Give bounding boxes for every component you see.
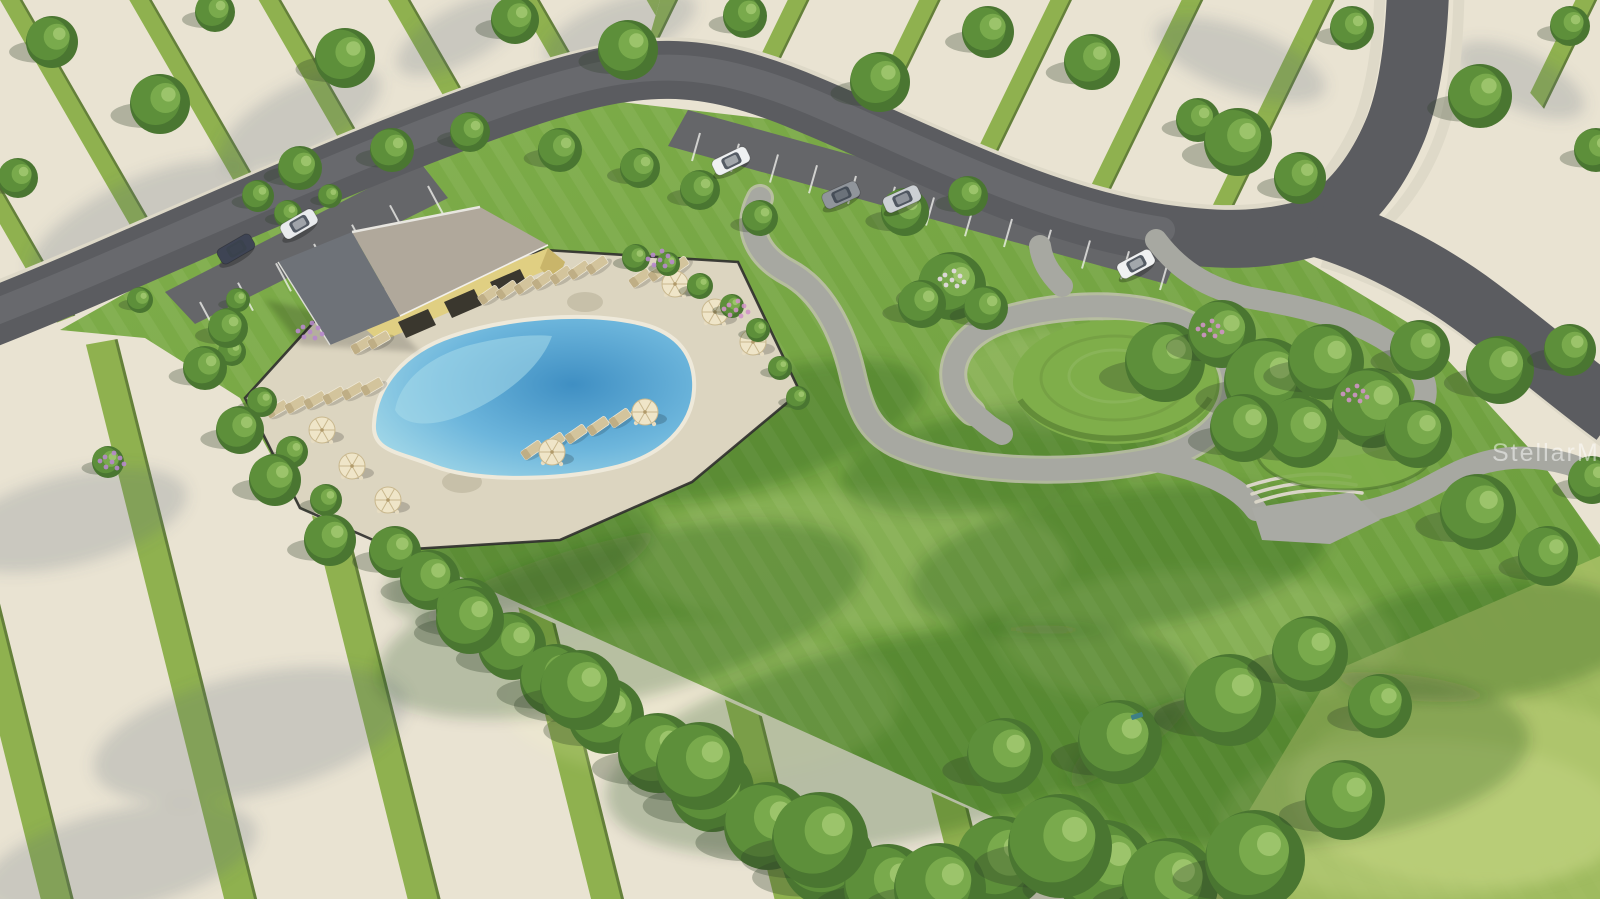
bloom (943, 273, 948, 278)
bloom (1347, 398, 1352, 403)
canopy-highlight (1421, 333, 1435, 347)
umbrella-finial (550, 450, 554, 454)
bloom (727, 303, 732, 308)
bloom (1196, 327, 1201, 332)
bloom (670, 260, 675, 265)
canopy-highlight (987, 296, 998, 307)
canopy-highlight (881, 65, 895, 79)
canopy-highlight (942, 863, 964, 885)
canopy-highlight (1245, 409, 1261, 425)
canopy-highlight (393, 138, 404, 149)
canopy-highlight (238, 293, 244, 299)
canopy-highlight (331, 525, 343, 537)
bloom (301, 325, 306, 330)
canopy-highlight (1328, 341, 1346, 359)
bloom (1210, 319, 1215, 324)
canopy-highlight (1232, 674, 1254, 696)
bloom (115, 466, 120, 471)
bloom (728, 313, 733, 318)
canopy-highlight (1257, 832, 1281, 856)
canopy-highlight (1122, 718, 1142, 738)
bloom (310, 321, 315, 326)
canopy-highlight (1199, 108, 1210, 119)
canopy-highlight (1419, 415, 1435, 431)
canopy-highlight (702, 741, 723, 762)
canopy-highlight (1312, 633, 1330, 651)
deck-medallion (567, 292, 603, 312)
bloom (666, 254, 671, 259)
canopy-highlight (516, 7, 528, 19)
bloom (308, 330, 313, 335)
canopy-highlight (1571, 335, 1583, 347)
bloom (1341, 392, 1346, 397)
bloom (1358, 399, 1363, 404)
canopy-highlight (229, 317, 239, 327)
bloom (944, 283, 949, 288)
canopy-highlight (637, 250, 644, 257)
canopy-highlight (1374, 386, 1393, 405)
canopy-highlight (1007, 735, 1025, 753)
canopy-highlight (1571, 15, 1581, 25)
canopy-highlight (561, 138, 572, 149)
canopy-highlight (761, 208, 770, 217)
aerial-site-plan: StellarMLS (0, 0, 1600, 899)
canopy-highlight (758, 323, 764, 329)
bloom (658, 258, 663, 263)
bloom (1365, 395, 1370, 400)
canopy-highlight (293, 443, 301, 451)
bloom (118, 456, 123, 461)
canopy-highlight (969, 185, 979, 195)
canopy-highlight (701, 179, 711, 189)
bloom (952, 269, 957, 274)
bloom (663, 264, 668, 269)
canopy-highlight (513, 627, 529, 643)
canopy-highlight (19, 167, 29, 177)
bloom (938, 277, 943, 282)
bloom (1216, 324, 1221, 329)
bloom (1213, 334, 1218, 339)
canopy-highlight (471, 601, 487, 617)
bloom (646, 257, 651, 262)
bloom (962, 280, 967, 285)
canopy-highlight (746, 4, 757, 15)
bloom (1361, 389, 1366, 394)
canopy-highlight (263, 394, 270, 401)
bloom (1346, 388, 1351, 393)
canopy-highlight (1303, 412, 1320, 429)
canopy-highlight (1381, 688, 1396, 703)
canopy-highlight (780, 361, 786, 367)
canopy-highlight (327, 491, 335, 499)
canopy-highlight (396, 537, 408, 549)
canopy-highlight (1223, 315, 1239, 331)
canopy-highlight (431, 563, 445, 577)
canopy-highlight (259, 187, 267, 195)
bloom (736, 299, 741, 304)
canopy-highlight (798, 391, 804, 397)
canopy-highlight (206, 356, 217, 367)
umbrella-finial (350, 464, 354, 468)
canopy-highlight (1093, 46, 1106, 59)
canopy-highlight (1481, 78, 1496, 93)
canopy-highlight (1353, 16, 1364, 27)
bloom (104, 465, 109, 470)
bloom (110, 460, 115, 465)
canopy-highlight (923, 291, 935, 303)
canopy-highlight (1062, 817, 1087, 842)
bloom (122, 462, 127, 467)
canopy-highlight (330, 189, 336, 195)
canopy-highlight (582, 668, 601, 687)
bloom (660, 249, 665, 254)
canopy-highlight (1347, 778, 1366, 797)
umbrella-finial (320, 428, 324, 432)
canopy-highlight (1301, 163, 1313, 175)
canopy-highlight (241, 417, 253, 429)
canopy-highlight (161, 87, 175, 101)
canopy-highlight (276, 465, 288, 477)
umbrella-finial (673, 282, 677, 286)
canopy-highlight (301, 156, 312, 167)
canopy-highlight (641, 157, 651, 167)
canopy-highlight (1480, 491, 1498, 509)
bloom (103, 455, 108, 460)
bloom (652, 263, 657, 268)
canopy-highlight (1239, 123, 1255, 139)
bloom (296, 329, 301, 334)
bloom (1353, 393, 1358, 398)
umbrella-finial (386, 498, 390, 502)
community-aerial-rendering: StellarMLS (0, 0, 1600, 899)
canopy-highlight (1549, 539, 1563, 553)
canopy-highlight (701, 279, 707, 285)
bloom (302, 335, 307, 340)
canopy-highlight (141, 293, 147, 299)
bloom (1202, 333, 1207, 338)
canopy-highlight (1501, 351, 1517, 367)
canopy-highlight (989, 17, 1001, 29)
canopy-highlight (346, 41, 360, 55)
bloom (651, 253, 656, 258)
bloom (1201, 323, 1206, 328)
canopy-highlight (53, 27, 65, 39)
bloom (746, 310, 751, 315)
bloom (734, 308, 739, 313)
canopy-highlight (216, 1, 226, 11)
bloom (320, 332, 325, 337)
canopy-highlight (822, 813, 845, 836)
bloom (1220, 330, 1225, 335)
bloom (950, 278, 955, 283)
bloom (958, 274, 963, 279)
canopy-highlight (629, 33, 643, 47)
canopy-highlight (471, 121, 481, 131)
bloom (722, 307, 727, 312)
bloom (313, 336, 318, 341)
bloom (742, 304, 747, 309)
bloom (112, 451, 117, 456)
canopy-highlight (289, 206, 296, 213)
stellar-mls-watermark: StellarMLS (1492, 439, 1600, 467)
umbrella-finial (643, 410, 647, 414)
bloom (316, 326, 321, 331)
bloom (1355, 384, 1360, 389)
bloom (1208, 328, 1213, 333)
bloom (739, 314, 744, 319)
bloom (98, 459, 103, 464)
bloom (955, 284, 960, 289)
